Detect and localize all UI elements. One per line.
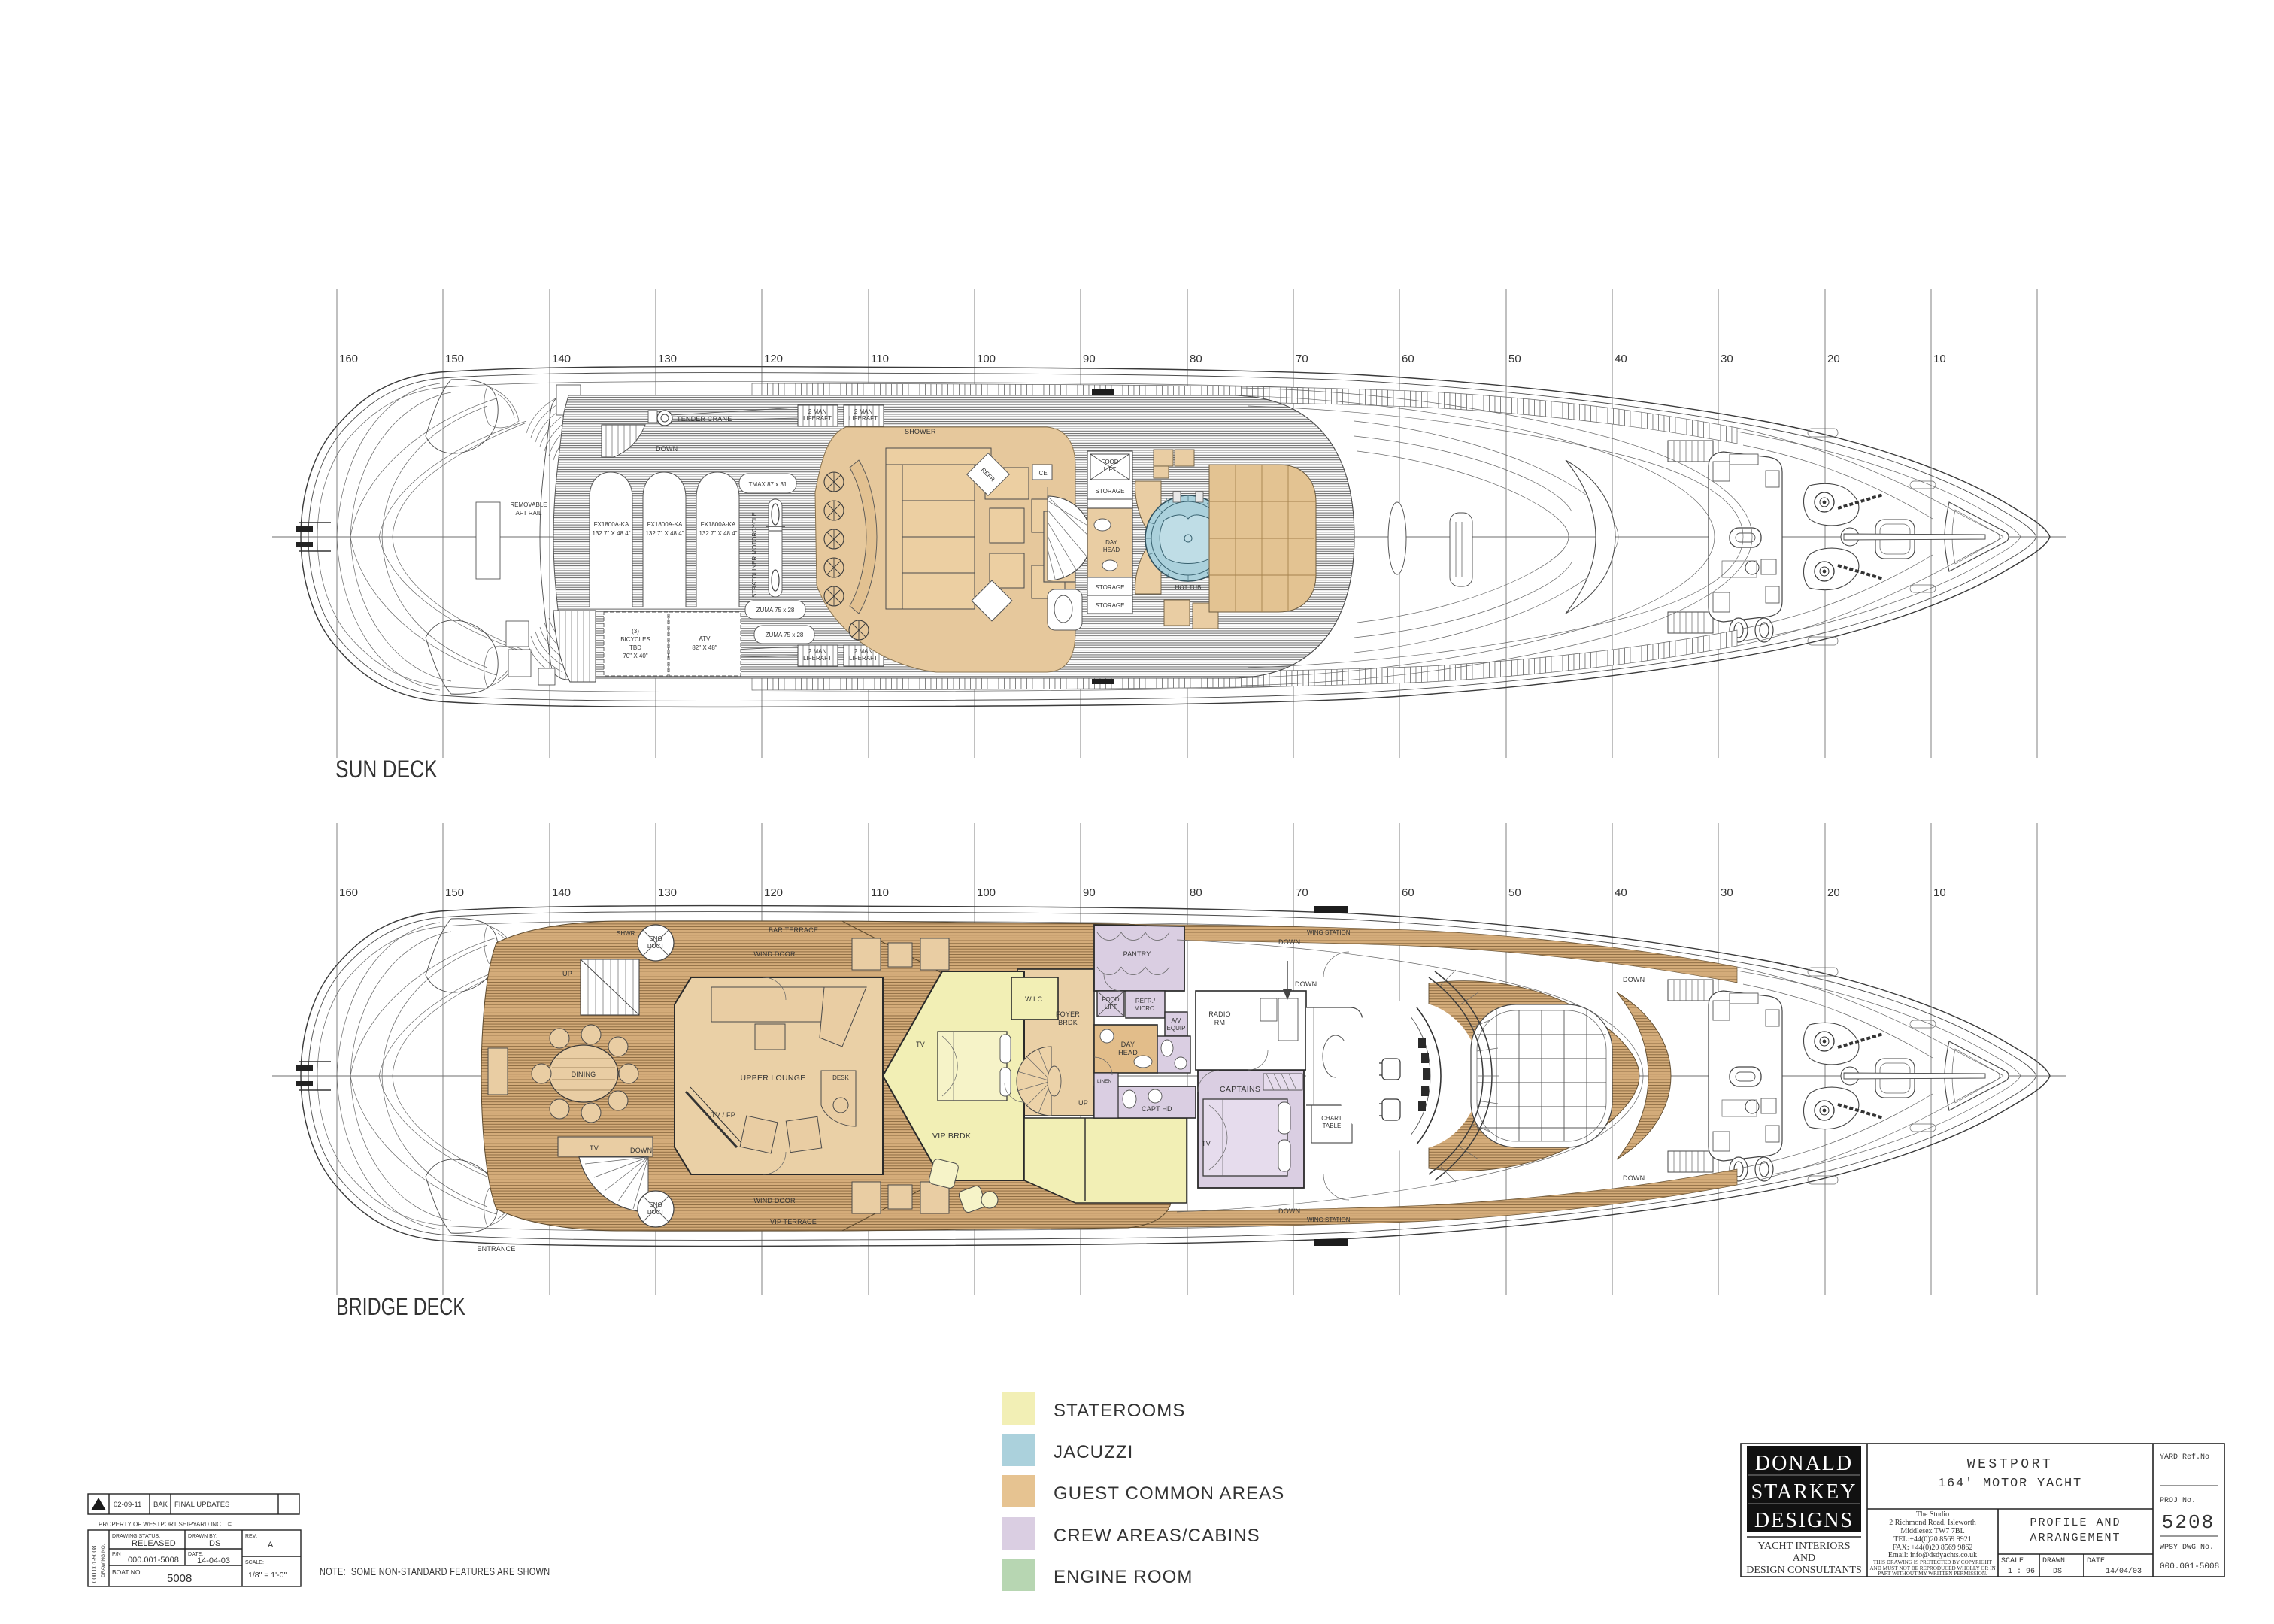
svg-text:RELEASED: RELEASED <box>132 1539 176 1548</box>
svg-text:90: 90 <box>1083 353 1096 365</box>
svg-text:2 MAN: 2 MAN <box>808 648 827 655</box>
svg-text:DOWN: DOWN <box>1623 1174 1645 1182</box>
svg-text:YACHT INTERIORS: YACHT INTERIORS <box>1757 1541 1850 1552</box>
svg-text:DUCT: DUCT <box>647 1209 664 1216</box>
svg-text:80: 80 <box>1190 886 1202 899</box>
svg-text:DONALD: DONALD <box>1755 1452 1853 1475</box>
svg-text:DRAWING STATUS:: DRAWING STATUS: <box>112 1534 160 1539</box>
svg-text:TV / FP: TV / FP <box>711 1111 735 1119</box>
svg-text:A/V: A/V <box>1172 1017 1182 1024</box>
svg-text:5208: 5208 <box>2162 1511 2215 1534</box>
svg-text:DOWN: DOWN <box>630 1147 652 1154</box>
svg-text:ENG: ENG <box>649 935 662 942</box>
svg-text:WPSY DWG No.: WPSY DWG No. <box>2160 1544 2214 1552</box>
svg-text:WING STATION: WING STATION <box>1307 929 1351 936</box>
svg-text:2 MAN: 2 MAN <box>808 408 827 415</box>
svg-text:ZUMA 75 x 28: ZUMA 75 x 28 <box>766 632 804 638</box>
svg-text:UP: UP <box>1078 1099 1088 1107</box>
svg-text:1/8" = 1'-0": 1/8" = 1'-0" <box>248 1571 287 1580</box>
svg-text:SHWR: SHWR <box>617 930 635 937</box>
svg-text:150: 150 <box>445 886 464 899</box>
svg-text:YARD Ref.No: YARD Ref.No <box>2160 1453 2209 1462</box>
svg-text:TV: TV <box>916 1041 925 1048</box>
svg-text:SCALE: SCALE <box>2001 1557 2024 1565</box>
svg-text:VIP TERRACE: VIP TERRACE <box>770 1218 817 1226</box>
svg-text:TBD: TBD <box>629 644 641 651</box>
svg-text:DOWN: DOWN <box>1278 938 1300 946</box>
svg-text:RM: RM <box>1214 1019 1225 1026</box>
svg-text:THIS DRAWING IS PROTECTED BY C: THIS DRAWING IS PROTECTED BY COPYRIGHT <box>1873 1559 1992 1565</box>
svg-text:60: 60 <box>1402 886 1414 899</box>
svg-text:DUCT: DUCT <box>647 943 664 950</box>
svg-text:DAY: DAY <box>1121 1041 1135 1048</box>
svg-text:1 : 96: 1 : 96 <box>2008 1568 2035 1576</box>
svg-text:2 Richmond Road, Isleworth: 2 Richmond Road, Isleworth <box>1889 1519 1976 1527</box>
svg-text:FX1800A-KA: FX1800A-KA <box>647 521 683 528</box>
svg-text:PROPERTY OF WESTPORT SHIPYARD: PROPERTY OF WESTPORT SHIPYARD INC. © <box>99 1521 232 1528</box>
svg-text:CAPTAINS: CAPTAINS <box>1220 1085 1260 1094</box>
svg-text:20: 20 <box>1827 886 1840 899</box>
svg-text:DOWN: DOWN <box>656 445 678 453</box>
svg-text:BRDK: BRDK <box>1058 1019 1078 1026</box>
svg-text:PART WITHOUT MY WRITTEN PERMIS: PART WITHOUT MY WRITTEN PERMISSION. <box>1878 1571 1987 1577</box>
svg-text:DS: DS <box>209 1539 220 1548</box>
svg-text:LIFERAFT: LIFERAFT <box>849 655 878 662</box>
svg-text:90: 90 <box>1083 886 1096 899</box>
svg-text:TENDER CRANE: TENDER CRANE <box>677 415 732 423</box>
svg-text:W.I.C.: W.I.C. <box>1025 995 1045 1003</box>
svg-text:FINAL UPDATES: FINAL UPDATES <box>174 1501 229 1509</box>
svg-text:120: 120 <box>764 886 783 899</box>
svg-text:WIND DOOR: WIND DOOR <box>753 950 796 958</box>
svg-text:BOAT NO.: BOAT NO. <box>112 1568 142 1576</box>
svg-text:000.001-5008: 000.001-5008 <box>91 1545 98 1583</box>
svg-text:LIFERAFT: LIFERAFT <box>803 415 832 422</box>
svg-text:PROJ No.: PROJ No. <box>2160 1497 2196 1505</box>
svg-text:14/04/03: 14/04/03 <box>2106 1567 2142 1576</box>
svg-text:ENG: ENG <box>649 1201 662 1208</box>
svg-text:140: 140 <box>552 886 571 899</box>
svg-text:110: 110 <box>871 353 889 365</box>
svg-text:14-04-03: 14-04-03 <box>197 1556 230 1565</box>
svg-text:PANTRY: PANTRY <box>1123 950 1151 958</box>
svg-text:DS: DS <box>2053 1568 2062 1576</box>
svg-text:STORAGE: STORAGE <box>1096 602 1125 609</box>
svg-text:LIFERAFT: LIFERAFT <box>803 655 832 662</box>
svg-text:DRAWN BY:: DRAWN BY: <box>188 1534 217 1539</box>
svg-text:SUN DECK: SUN DECK <box>335 757 438 783</box>
svg-text:130: 130 <box>658 886 677 899</box>
svg-text:ENTRANCE: ENTRANCE <box>477 1245 515 1253</box>
svg-text:164' MOTOR YACHT: 164' MOTOR YACHT <box>1938 1477 2082 1491</box>
svg-text:BICYCLES: BICYCLES <box>620 636 650 643</box>
svg-text:AND: AND <box>1793 1553 1815 1564</box>
svg-text:LIFT: LIFT <box>1104 466 1117 473</box>
svg-text:DESIGN CONSULTANTS: DESIGN CONSULTANTS <box>1746 1565 1862 1576</box>
svg-text:BAK: BAK <box>153 1501 168 1509</box>
svg-text:PROFILE AND: PROFILE AND <box>2030 1516 2121 1529</box>
svg-text:CREW AREAS/CABINS: CREW AREAS/CABINS <box>1054 1526 1260 1546</box>
svg-text:RADIO: RADIO <box>1208 1010 1231 1018</box>
svg-text:ARRANGEMENT: ARRANGEMENT <box>2030 1532 2121 1544</box>
svg-text:DOWN: DOWN <box>1623 976 1645 983</box>
svg-text:80: 80 <box>1190 353 1202 365</box>
svg-text:10: 10 <box>1933 353 1946 365</box>
svg-text:02-09-11: 02-09-11 <box>114 1501 141 1509</box>
svg-text:UP: UP <box>562 970 572 977</box>
svg-text:WING STATION: WING STATION <box>1307 1216 1351 1223</box>
svg-text:FOOD: FOOD <box>1102 996 1119 1003</box>
svg-text:CHART: CHART <box>1321 1115 1342 1122</box>
svg-text:100: 100 <box>977 886 996 899</box>
svg-text:LINEN: LINEN <box>1097 1079 1111 1084</box>
svg-text:110: 110 <box>871 886 889 899</box>
svg-text:REMOVABLE: REMOVABLE <box>510 501 547 508</box>
svg-text:30: 30 <box>1721 353 1733 365</box>
svg-text:140: 140 <box>552 353 571 365</box>
svg-text:DOWN: DOWN <box>1295 980 1317 988</box>
svg-text:TMAX 87 x 31: TMAX 87 x 31 <box>749 481 787 488</box>
svg-text:BRIDGE DECK: BRIDGE DECK <box>336 1294 465 1321</box>
svg-text:FOOD: FOOD <box>1101 459 1118 465</box>
svg-text:Middlesex TW7 7BL: Middlesex TW7 7BL <box>1900 1527 1964 1535</box>
svg-text:5008: 5008 <box>167 1572 192 1585</box>
svg-text:GUEST COMMON AREAS: GUEST COMMON AREAS <box>1054 1483 1284 1504</box>
svg-text:The Studio: The Studio <box>1916 1510 1949 1519</box>
svg-text:AFT RAIL: AFT RAIL <box>516 510 543 517</box>
svg-text:70: 70 <box>1296 886 1308 899</box>
svg-text:STORAGE: STORAGE <box>1096 488 1125 495</box>
svg-text:HEAD: HEAD <box>1103 547 1120 553</box>
svg-text:(3): (3) <box>632 628 639 635</box>
svg-text:2 MAN: 2 MAN <box>854 648 873 655</box>
svg-text:STATEROOMS: STATEROOMS <box>1054 1401 1185 1421</box>
svg-text:000.001-5008: 000.001-5008 <box>128 1556 179 1565</box>
svg-text:SHOWER: SHOWER <box>905 428 936 435</box>
svg-text:ICE: ICE <box>1037 470 1047 477</box>
svg-text:HOT TUB: HOT TUB <box>1175 584 1202 591</box>
svg-text:60: 60 <box>1402 353 1414 365</box>
svg-text:LIFERAFT: LIFERAFT <box>849 415 878 422</box>
svg-text:40: 40 <box>1615 886 1627 899</box>
svg-text:132.7" X 48.4": 132.7" X 48.4" <box>592 530 630 537</box>
svg-text:STORAGE: STORAGE <box>1096 584 1125 591</box>
svg-text:REV:: REV: <box>245 1534 257 1539</box>
svg-text:120: 120 <box>764 353 783 365</box>
svg-text:ZUMA 75 x 28: ZUMA 75 x 28 <box>756 607 795 614</box>
svg-text:DESK: DESK <box>832 1074 849 1081</box>
svg-text:MICRO.: MICRO. <box>1135 1005 1157 1012</box>
svg-text:EQUIP: EQUIP <box>1167 1025 1186 1032</box>
svg-text:DATE: DATE <box>2087 1557 2105 1565</box>
svg-text:DESIGNS: DESIGNS <box>1754 1509 1854 1532</box>
svg-text:NOTE: SOME NON-STANDARD FEATU: NOTE: SOME NON-STANDARD FEATURES ARE SHO… <box>320 1565 550 1577</box>
svg-text:40: 40 <box>1615 353 1627 365</box>
svg-text:CAPT HD: CAPT HD <box>1142 1105 1172 1113</box>
svg-text:FX1800A-KA: FX1800A-KA <box>594 521 629 528</box>
svg-text:160: 160 <box>339 353 358 365</box>
svg-text:STARKEY: STARKEY <box>1751 1480 1857 1504</box>
svg-text:100: 100 <box>977 353 996 365</box>
svg-text:UPPER LOUNGE: UPPER LOUNGE <box>740 1074 805 1083</box>
svg-text:DRAWING NO.: DRAWING NO. <box>101 1544 106 1577</box>
svg-text:P/N: P/N <box>112 1552 121 1557</box>
svg-text:BAR TERRACE: BAR TERRACE <box>769 926 818 934</box>
svg-text:DRAWN: DRAWN <box>2042 1557 2065 1565</box>
svg-text:Email: info@dsdyachts.co.uk: Email: info@dsdyachts.co.uk <box>1888 1551 1977 1559</box>
svg-text:HEAD: HEAD <box>1118 1049 1138 1056</box>
svg-text:160: 160 <box>339 886 358 899</box>
svg-text:30: 30 <box>1721 886 1733 899</box>
svg-text:ENGINE ROOM: ENGINE ROOM <box>1054 1567 1193 1587</box>
svg-text:ATV: ATV <box>699 635 711 642</box>
svg-text:70" X 40": 70" X 40" <box>623 653 647 659</box>
svg-text:STRATOLINER MOTORCYCLE: STRATOLINER MOTORCYCLE <box>751 512 758 598</box>
svg-text:TABLE: TABLE <box>1323 1123 1342 1129</box>
svg-text:VIP BRDK: VIP BRDK <box>932 1132 971 1141</box>
svg-text:FX1800A-KA: FX1800A-KA <box>701 521 736 528</box>
svg-text:50: 50 <box>1508 353 1521 365</box>
svg-text:WESTPORT: WESTPORT <box>1967 1457 2053 1472</box>
svg-text:000.001-5008: 000.001-5008 <box>2160 1562 2219 1571</box>
svg-text:DAY: DAY <box>1105 539 1118 546</box>
svg-text:JACUZZI: JACUZZI <box>1054 1442 1133 1462</box>
svg-text:2 MAN: 2 MAN <box>854 408 873 415</box>
svg-text:TV: TV <box>1202 1140 1211 1147</box>
svg-text:10: 10 <box>1933 886 1946 899</box>
svg-text:20: 20 <box>1827 353 1840 365</box>
svg-text:130: 130 <box>658 353 677 365</box>
svg-text:SCALE:: SCALE: <box>245 1560 264 1565</box>
svg-text:70: 70 <box>1296 353 1308 365</box>
svg-text:WIND DOOR: WIND DOOR <box>753 1197 796 1204</box>
svg-text:FOYER: FOYER <box>1056 1010 1080 1018</box>
svg-text:150: 150 <box>445 353 464 365</box>
svg-text:50: 50 <box>1508 886 1521 899</box>
svg-text:DOWN: DOWN <box>1278 1207 1300 1215</box>
svg-text:DINING: DINING <box>572 1071 596 1078</box>
svg-text:A: A <box>268 1541 274 1550</box>
svg-text:LIFT: LIFT <box>1105 1004 1117 1010</box>
svg-text:82" X 48": 82" X 48" <box>692 644 717 651</box>
svg-text:REFR./: REFR./ <box>1135 998 1156 1004</box>
svg-text:TV: TV <box>590 1144 599 1152</box>
svg-text:132.7" X 48.4": 132.7" X 48.4" <box>645 530 684 537</box>
svg-text:132.7" X 48.4": 132.7" X 48.4" <box>699 530 737 537</box>
svg-text:TEL:+44(0)20 8569 9921: TEL:+44(0)20 8569 9921 <box>1893 1535 1971 1544</box>
